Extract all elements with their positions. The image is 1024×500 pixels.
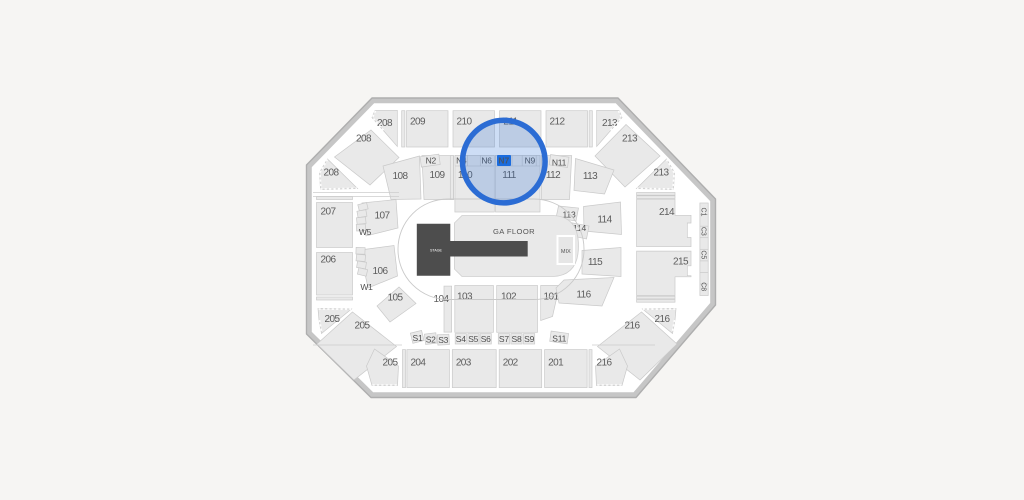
svg-text:C1: C1 <box>700 208 707 217</box>
svg-text:205: 205 <box>325 314 341 325</box>
svg-text:S1: S1 <box>413 333 423 343</box>
svg-text:210: 210 <box>457 117 473 128</box>
svg-text:114: 114 <box>597 215 612 226</box>
svg-text:107: 107 <box>375 211 391 222</box>
svg-text:112: 112 <box>546 170 561 181</box>
svg-text:109: 109 <box>430 170 446 181</box>
svg-text:STAGE: STAGE <box>430 249 443 253</box>
svg-text:N7: N7 <box>498 155 509 165</box>
svg-text:S9: S9 <box>524 334 534 344</box>
svg-text:S7: S7 <box>499 334 509 344</box>
svg-text:GA FLOOR: GA FLOOR <box>493 227 535 236</box>
svg-text:113: 113 <box>583 171 598 182</box>
svg-text:S4: S4 <box>456 334 466 344</box>
svg-text:208: 208 <box>356 134 372 145</box>
svg-text:206: 206 <box>321 255 337 266</box>
svg-text:N2: N2 <box>426 155 437 165</box>
svg-text:W1: W1 <box>360 282 373 292</box>
svg-text:213: 213 <box>654 168 670 179</box>
svg-text:C5: C5 <box>700 250 707 259</box>
svg-text:202: 202 <box>503 358 519 369</box>
svg-text:C3: C3 <box>700 227 707 236</box>
svg-text:205: 205 <box>355 321 371 332</box>
svg-text:N11: N11 <box>552 157 567 167</box>
svg-text:S11: S11 <box>552 333 566 343</box>
svg-text:C8: C8 <box>700 282 707 291</box>
svg-text:S5: S5 <box>468 334 478 344</box>
svg-text:115: 115 <box>588 257 603 268</box>
svg-text:208: 208 <box>324 168 340 179</box>
svg-text:213: 213 <box>602 118 618 129</box>
svg-text:207: 207 <box>321 207 337 218</box>
svg-text:212: 212 <box>550 117 566 128</box>
svg-text:213: 213 <box>622 134 638 145</box>
svg-text:214: 214 <box>659 207 675 218</box>
svg-text:204: 204 <box>410 358 426 369</box>
svg-text:203: 203 <box>456 358 472 369</box>
svg-text:216: 216 <box>597 358 613 369</box>
svg-text:116: 116 <box>576 290 591 301</box>
svg-text:108: 108 <box>393 171 409 182</box>
svg-text:216: 216 <box>625 321 641 332</box>
svg-text:102: 102 <box>501 292 517 303</box>
svg-text:201: 201 <box>548 358 564 369</box>
svg-text:105: 105 <box>388 293 404 304</box>
svg-text:W5: W5 <box>359 227 372 237</box>
svg-text:S8: S8 <box>512 334 522 344</box>
svg-text:205: 205 <box>383 358 399 369</box>
svg-text:106: 106 <box>373 266 389 277</box>
svg-text:215: 215 <box>673 257 689 268</box>
svg-text:MIX: MIX <box>561 249 571 255</box>
svg-text:S6: S6 <box>481 334 491 344</box>
svg-text:216: 216 <box>655 314 671 325</box>
svg-text:S2: S2 <box>426 334 436 344</box>
svg-text:208: 208 <box>377 118 393 129</box>
svg-text:S3: S3 <box>438 335 448 345</box>
svg-text:209: 209 <box>410 117 426 128</box>
svg-text:103: 103 <box>457 292 473 303</box>
